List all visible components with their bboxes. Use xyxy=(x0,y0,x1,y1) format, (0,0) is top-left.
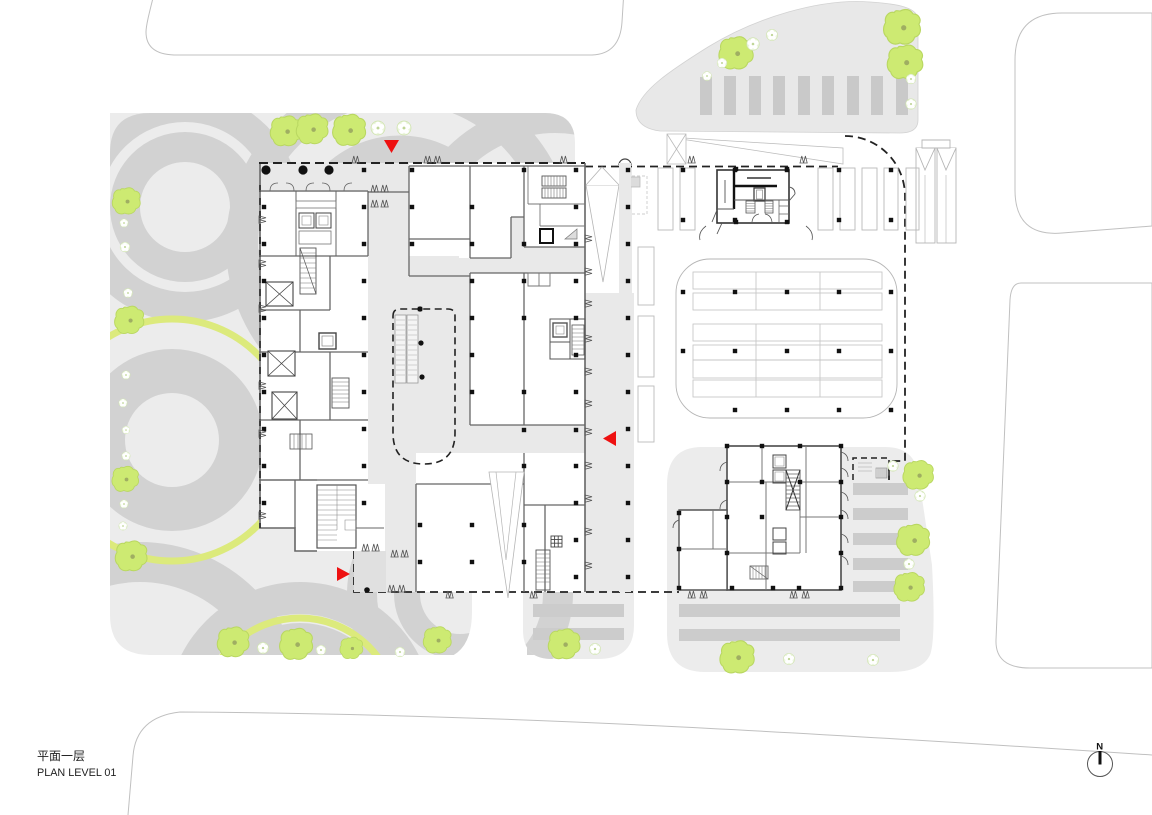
svg-text:N: N xyxy=(1096,742,1103,753)
svg-text:平面一层: 平面一层 xyxy=(37,749,85,763)
svg-text:PLAN LEVEL 01: PLAN LEVEL 01 xyxy=(37,767,116,779)
